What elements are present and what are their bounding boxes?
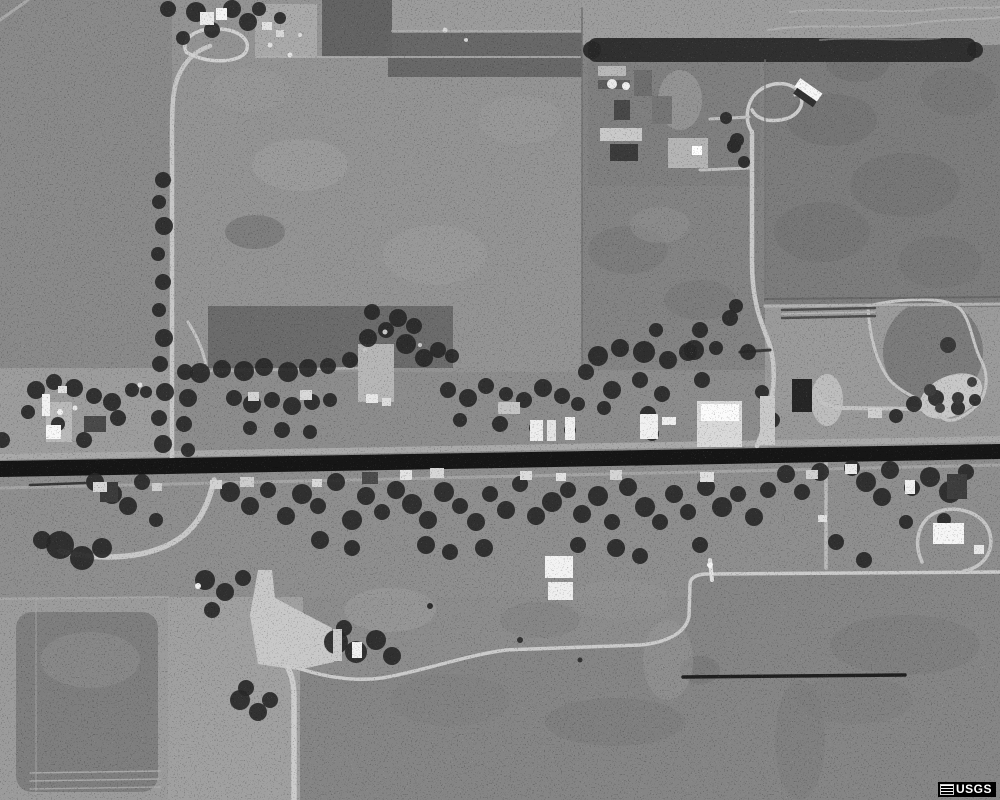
usgs-badge: USGS	[938, 782, 996, 797]
aerial-photo-canvas	[0, 0, 1000, 800]
usgs-logo-text: USGS	[956, 783, 992, 795]
aerial-photo: USGS	[0, 0, 1000, 800]
usgs-logo-icon	[941, 785, 953, 794]
grain-light	[0, 0, 1000, 800]
film-grain	[0, 0, 1000, 800]
